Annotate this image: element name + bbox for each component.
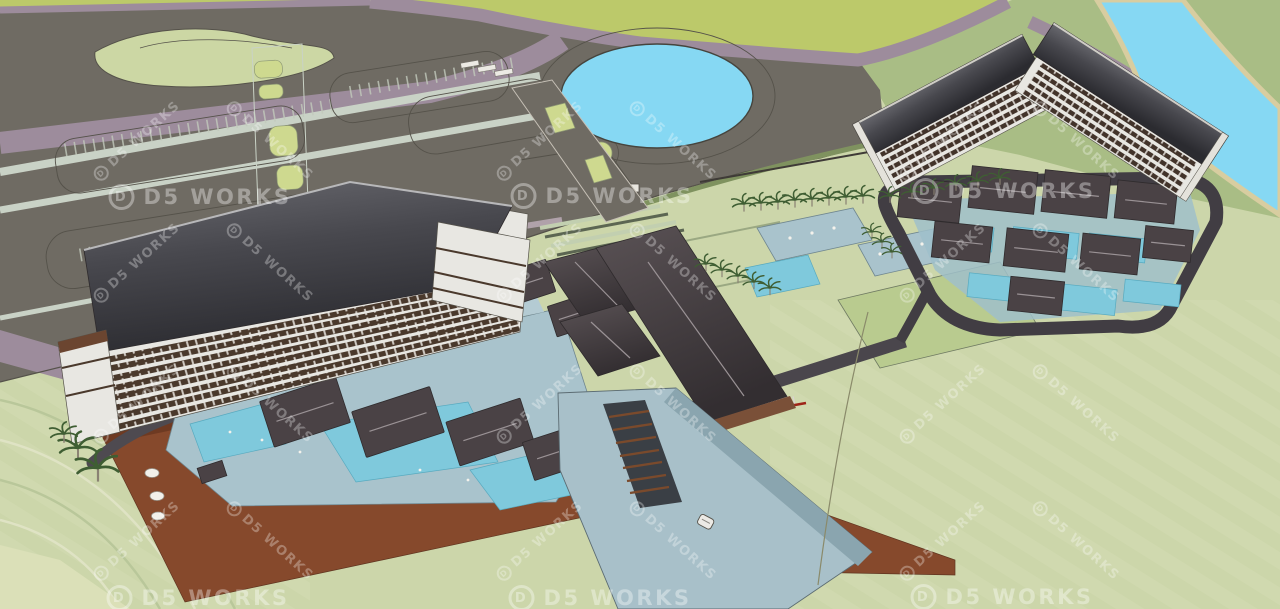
d5-logo-icon: D xyxy=(913,178,939,204)
watermark-layer: DD5 WORKSDD5 WORKSDD5 WORKSDD5 WORKSDD5 … xyxy=(0,0,1280,609)
d5-logo-icon: D xyxy=(511,183,537,209)
watermark-text: D5 WORKS xyxy=(544,586,692,609)
watermark-text: D5 WORKS xyxy=(946,585,1094,609)
watermark: DD5 WORKS xyxy=(91,361,184,447)
d5-logo-icon: D xyxy=(91,285,112,306)
watermark: DD5 WORKS xyxy=(911,584,1094,609)
watermark-text: D5 WORKS xyxy=(106,498,184,570)
watermark-text: D5 WORKS xyxy=(912,220,990,292)
watermark: DD5 WORKS xyxy=(91,220,184,306)
watermark-text: D5 WORKS xyxy=(912,98,990,170)
watermark: DD5 WORKS xyxy=(1030,361,1123,447)
watermark-text: D5 WORKS xyxy=(1045,112,1123,184)
watermark-text: D5 WORKS xyxy=(239,375,317,447)
watermark-text: D5 WORKS xyxy=(642,512,720,584)
watermark: DD5 WORKS xyxy=(511,183,694,209)
render-viewport: DD5 WORKSDD5 WORKSDD5 WORKSDD5 WORKSDD5 … xyxy=(0,0,1280,609)
watermark-text: D5 WORKS xyxy=(546,184,694,208)
watermark-text: D5 WORKS xyxy=(106,220,184,292)
watermark: DD5 WORKS xyxy=(913,178,1096,204)
watermark-text: D5 WORKS xyxy=(239,112,317,184)
watermark: DD5 WORKS xyxy=(1030,98,1123,184)
d5-logo-icon: D xyxy=(911,584,937,609)
d5-logo-icon: D xyxy=(897,163,918,184)
d5-logo-icon: D xyxy=(91,163,112,184)
watermark-text: D5 WORKS xyxy=(239,234,317,306)
watermark: DD5 WORKS xyxy=(1030,220,1123,306)
d5-logo-icon: D xyxy=(224,220,245,241)
watermark: DD5 WORKS xyxy=(627,98,720,184)
d5-logo-icon: D xyxy=(1030,98,1051,119)
watermark: DD5 WORKS xyxy=(509,585,692,609)
watermark: DD5 WORKS xyxy=(897,498,990,584)
watermark: DD5 WORKS xyxy=(109,184,292,210)
d5-logo-icon: D xyxy=(1030,498,1051,519)
watermark-text: D5 WORKS xyxy=(509,498,587,570)
d5-logo-icon: D xyxy=(627,220,648,241)
d5-logo-icon: D xyxy=(897,426,918,447)
d5-logo-icon: D xyxy=(224,98,245,119)
watermark: DD5 WORKS xyxy=(107,585,290,609)
watermark: DD5 WORKS xyxy=(897,98,990,184)
watermark-text: D5 WORKS xyxy=(239,512,317,584)
d5-logo-icon: D xyxy=(494,163,515,184)
watermark-text: D5 WORKS xyxy=(509,220,587,292)
watermark: DD5 WORKS xyxy=(494,220,587,306)
d5-logo-icon: D xyxy=(1030,361,1051,382)
watermark-text: D5 WORKS xyxy=(509,361,587,433)
d5-logo-icon: D xyxy=(509,585,535,609)
watermark-text: D5 WORKS xyxy=(1045,234,1123,306)
watermark-text: D5 WORKS xyxy=(912,498,990,570)
d5-logo-icon: D xyxy=(627,98,648,119)
d5-logo-icon: D xyxy=(627,498,648,519)
watermark-text: D5 WORKS xyxy=(642,112,720,184)
watermark: DD5 WORKS xyxy=(224,361,317,447)
watermark: DD5 WORKS xyxy=(1030,498,1123,584)
d5-logo-icon: D xyxy=(494,426,515,447)
watermark: DD5 WORKS xyxy=(224,498,317,584)
watermark: DD5 WORKS xyxy=(494,498,587,584)
d5-logo-icon: D xyxy=(1030,220,1051,241)
watermark: DD5 WORKS xyxy=(627,361,720,447)
watermark-text: D5 WORKS xyxy=(642,234,720,306)
watermark: DD5 WORKS xyxy=(897,361,990,447)
watermark: DD5 WORKS xyxy=(627,220,720,306)
d5-logo-icon: D xyxy=(91,563,112,584)
d5-logo-icon: D xyxy=(224,498,245,519)
watermark: DD5 WORKS xyxy=(494,361,587,447)
d5-logo-icon: D xyxy=(109,184,135,210)
watermark-text: D5 WORKS xyxy=(142,586,290,609)
watermark-text: D5 WORKS xyxy=(509,98,587,170)
watermark-text: D5 WORKS xyxy=(912,361,990,433)
watermark-text: D5 WORKS xyxy=(642,375,720,447)
d5-logo-icon: D xyxy=(897,285,918,306)
watermark: DD5 WORKS xyxy=(224,220,317,306)
watermark: DD5 WORKS xyxy=(91,498,184,584)
watermark-text: D5 WORKS xyxy=(106,98,184,170)
d5-logo-icon: D xyxy=(627,361,648,382)
watermark: DD5 WORKS xyxy=(224,98,317,184)
watermark-text: D5 WORKS xyxy=(106,361,184,433)
d5-logo-icon: D xyxy=(107,585,133,609)
d5-logo-icon: D xyxy=(91,426,112,447)
watermark: DD5 WORKS xyxy=(627,498,720,584)
d5-logo-icon: D xyxy=(494,285,515,306)
d5-logo-icon: D xyxy=(897,563,918,584)
d5-logo-icon: D xyxy=(494,563,515,584)
watermark: DD5 WORKS xyxy=(91,98,184,184)
d5-logo-icon: D xyxy=(224,361,245,382)
watermark: DD5 WORKS xyxy=(494,98,587,184)
watermark-text: D5 WORKS xyxy=(1045,512,1123,584)
watermark-text: D5 WORKS xyxy=(948,179,1096,203)
watermark: DD5 WORKS xyxy=(897,220,990,306)
watermark-text: D5 WORKS xyxy=(1045,375,1123,447)
watermark-text: D5 WORKS xyxy=(144,185,292,209)
